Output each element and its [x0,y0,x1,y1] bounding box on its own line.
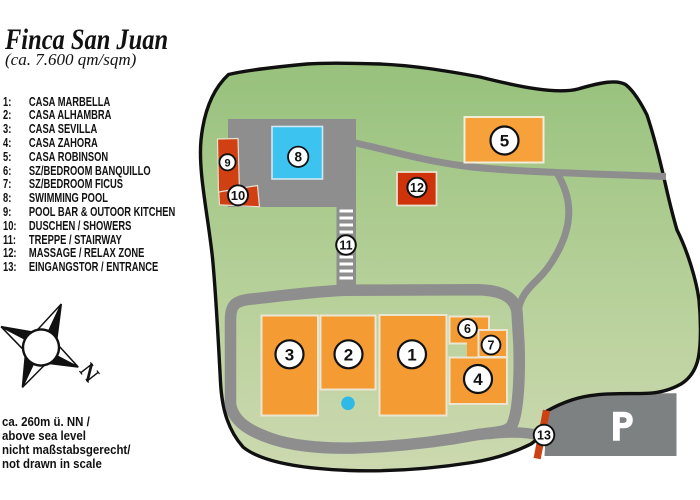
svg-text:4: 4 [473,370,483,389]
svg-text:11: 11 [339,239,352,253]
svg-text:1: 1 [407,345,416,364]
svg-text:13: 13 [537,429,551,443]
svg-text:12: 12 [410,181,424,195]
svg-text:6: 6 [464,322,471,336]
svg-text:10: 10 [231,188,245,203]
svg-text:2: 2 [344,345,353,364]
svg-text:9: 9 [224,157,230,169]
svg-text:7: 7 [488,339,495,353]
svg-text:3: 3 [285,345,294,364]
svg-text:8: 8 [294,150,302,165]
svg-text:5: 5 [500,132,509,151]
